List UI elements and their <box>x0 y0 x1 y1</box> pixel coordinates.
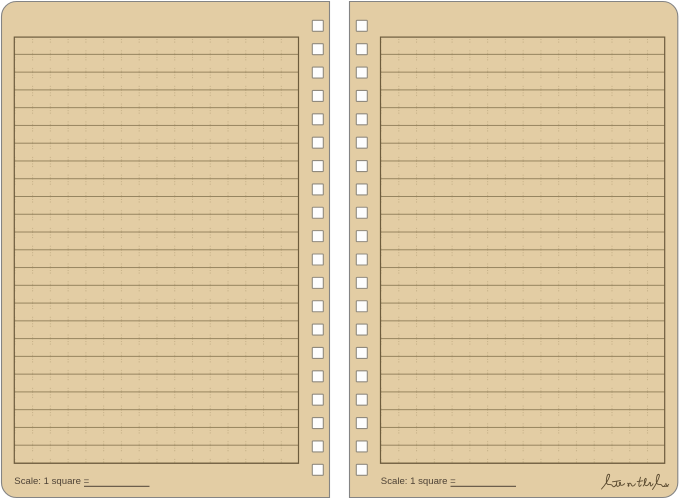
svg-text:Scale: 1 square =: Scale: 1 square = <box>14 476 89 487</box>
svg-text:Scale: 1 square =: Scale: 1 square = <box>381 476 456 487</box>
